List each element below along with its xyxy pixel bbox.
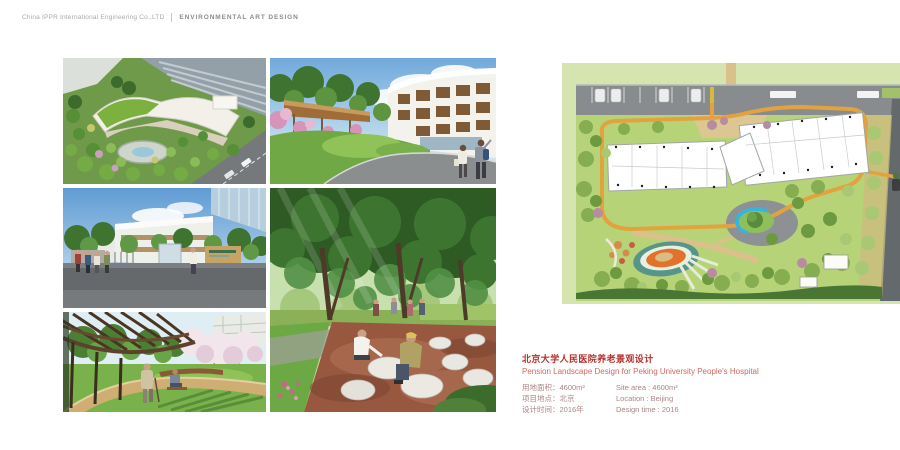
details-column-zh: 用地面积：4600m² 项目地点：北京 设计时间：2016年	[522, 382, 614, 415]
project-title-en: Pension Landscape Design for Peking Univ…	[522, 367, 852, 377]
detail-location-en: Location : Beijing	[616, 393, 679, 404]
detail-location-zh: 项目地点：北京	[522, 393, 614, 404]
department-title: ENVIRONMENTAL ART DESIGN	[179, 14, 298, 21]
courtyard-entrance-rendering	[270, 58, 496, 184]
detail-design-time-zh: 设计时间：2016年	[522, 404, 614, 415]
detail-design-time-en: Design time : 2016	[616, 404, 679, 415]
pergola-walkway-rendering	[63, 312, 266, 412]
road-label	[770, 91, 796, 98]
page-header: China IPPR International Engineering Co.…	[22, 11, 299, 23]
main-gate-rendering	[63, 188, 266, 308]
aerial-view-rendering	[63, 58, 266, 184]
service-structure	[824, 255, 848, 269]
header-divider	[171, 13, 172, 22]
photo-courtyard-entrance	[270, 58, 496, 184]
project-title-zh: 北京大学人民医院养老景观设计	[522, 354, 852, 365]
photo-pergola-walkway	[63, 312, 266, 412]
car-on-road	[892, 173, 900, 191]
photo-tree-plaza-seating	[270, 188, 496, 412]
turning-circle-pond	[736, 209, 774, 233]
site-plan-drawing	[562, 63, 900, 304]
site-plan	[562, 63, 900, 304]
road-label	[857, 91, 879, 98]
detail-site-area-zh: 用地面积：4600m²	[522, 382, 614, 393]
details-column-en: Site area : 4600m² Location : Beijing De…	[616, 382, 679, 415]
photo-aerial-view	[63, 58, 266, 184]
photo-main-gate	[63, 188, 266, 308]
page-spread: China IPPR International Engineering Co.…	[0, 0, 900, 450]
company-name: China IPPR International Engineering Co.…	[22, 14, 164, 21]
project-info: 北京大学人民医院养老景观设计 Pension Landscape Design …	[522, 354, 852, 415]
service-structure	[800, 277, 817, 287]
detail-site-area-en: Site area : 4600m²	[616, 382, 679, 393]
tree-plaza-seating-rendering	[270, 188, 496, 412]
project-details: 用地面积：4600m² 项目地点：北京 设计时间：2016年 Site area…	[522, 382, 852, 415]
